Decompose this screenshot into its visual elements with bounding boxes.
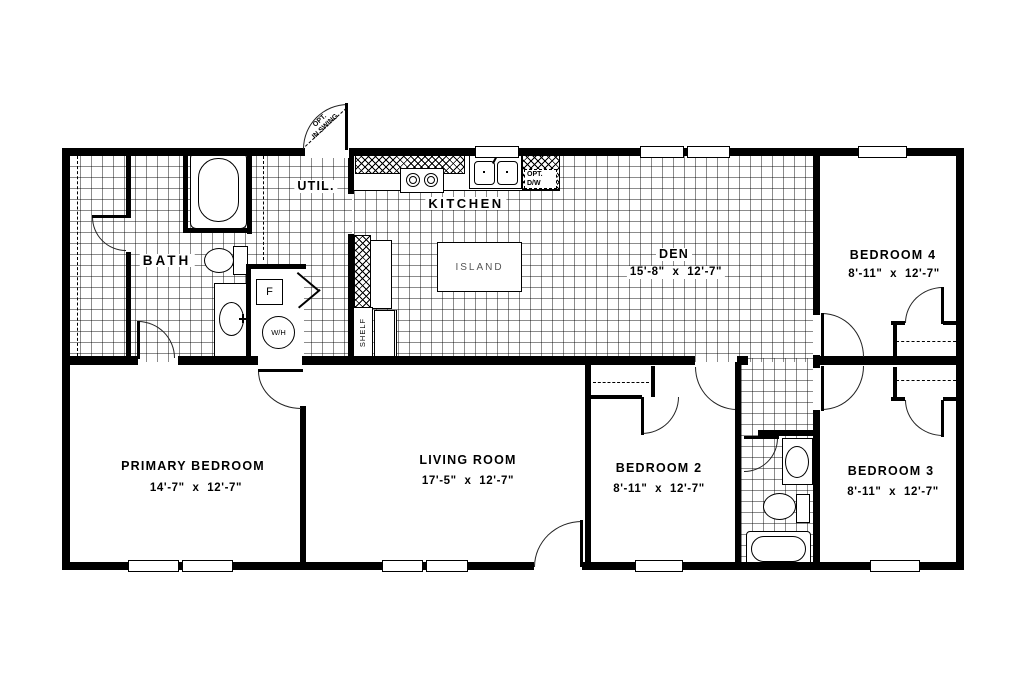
water-heater: W/H: [262, 316, 295, 349]
toilet2-tank: [796, 494, 810, 523]
room-dims-bedroom3: 8'-11" x 12'-7": [847, 486, 939, 498]
room-label-bath: BATH: [140, 254, 195, 267]
furnace-box: F: [256, 279, 283, 305]
window-bedroom2: [635, 560, 683, 572]
room-dims-living: 17'-5" x 12'-7": [422, 475, 514, 487]
room-label-util: UTIL.: [294, 180, 337, 193]
wall-segment: [247, 148, 252, 234]
bedroom3-closet-shelf-dashed: [896, 380, 956, 381]
pantry-hatch: [354, 235, 371, 308]
room-dims-den: 15'-8" x 12'-7": [627, 266, 725, 279]
basin-drain-dot: [506, 171, 508, 173]
shelf-label: SHELF: [359, 317, 368, 346]
wall-middle: [302, 356, 695, 365]
door-leaf: [137, 321, 140, 359]
room-dims-bedroom2: 8'-11" x 12'-7": [613, 483, 705, 495]
bathtub-basin: [198, 158, 239, 222]
wall-middle: [737, 356, 748, 365]
pantry-cabinet-lower: [374, 310, 397, 357]
room-label-living: LIVING ROOM: [419, 453, 516, 467]
sink-basin-left: [474, 161, 495, 185]
stove-burner-icon: [424, 173, 438, 187]
wall-middle: [178, 356, 258, 365]
door-leaf: [641, 397, 644, 435]
util-dashed-line: [263, 156, 264, 260]
door-swing-arc-bedroom4-closet: [905, 287, 943, 323]
door-leaf: [735, 367, 738, 410]
wall-segment: [943, 321, 960, 325]
wall-segment: [813, 410, 820, 570]
window-den-1: [640, 146, 684, 158]
floor-plan: OPT. D/W ISLAND SHELF F W/H: [0, 0, 1024, 683]
window-den-2: [687, 146, 730, 158]
wall-hall-bedrooms: [813, 148, 820, 315]
wall-segment: [893, 367, 897, 401]
window-primary-2: [182, 560, 233, 572]
door-swing-arc-bedroom3-closet: [905, 400, 943, 436]
stove-burner-icon: [406, 173, 420, 187]
window-kitchen: [475, 146, 519, 158]
room-label-kitchen: KITCHEN: [425, 197, 506, 210]
wall-middle: [62, 356, 138, 365]
wall-segment: [183, 228, 252, 233]
opt-dw-label-line1: OPT.: [527, 171, 543, 178]
wall-middle: [813, 356, 964, 365]
wall-segment: [943, 397, 960, 401]
room-label-bedroom2: BEDROOM 2: [616, 461, 703, 475]
door-swing-arc-bedroom4: [822, 313, 864, 357]
wall-segment: [126, 148, 131, 218]
window-living-2: [426, 560, 468, 572]
sink-basin-right: [497, 161, 518, 185]
door-swing-arc-bedroom2-closet: [642, 397, 679, 434]
bedroom4-closet-shelf-dashed: [896, 341, 956, 342]
bath2-sink: [785, 446, 809, 478]
wall-segment: [246, 264, 251, 364]
door-leaf: [92, 215, 127, 218]
wall-segment: [893, 321, 897, 357]
room-dims-primary: 14'-7" x 12'-7": [150, 482, 242, 494]
wall-segment: [891, 397, 905, 401]
opt-dw-label-line2: D/W: [527, 180, 541, 187]
wall-segment: [651, 366, 655, 397]
door-leaf: [941, 287, 944, 324]
wall-segment: [891, 321, 905, 325]
room-label-den: DEN: [656, 248, 692, 261]
door-leaf: [821, 313, 824, 358]
water-heater-label: W/H: [271, 328, 286, 337]
basin-drain-dot: [483, 171, 485, 173]
door-leaf: [258, 369, 303, 372]
window-bedroom4: [858, 146, 907, 158]
door-swing-arc-primary: [258, 371, 301, 409]
bathtub2-basin: [751, 536, 806, 562]
optional-dishwasher-box: OPT. D/W: [524, 169, 557, 189]
door-leaf: [941, 400, 944, 437]
closet-rod-dashed: [77, 156, 78, 356]
wall-segment: [246, 264, 306, 269]
kitchen-island: ISLAND: [437, 242, 522, 292]
wall-living-bedroom2: [585, 362, 591, 570]
stove: [400, 168, 444, 193]
faucet-icon: [242, 314, 244, 323]
shelf-box: SHELF: [353, 307, 373, 357]
room-label-bedroom4: BEDROOM 4: [850, 248, 937, 262]
window-primary-1: [128, 560, 179, 572]
wall-segment: [183, 148, 188, 232]
bedroom2-closet-shelf-dashed: [593, 382, 649, 383]
door-swing-arc-bedroom2: [695, 367, 737, 410]
room-label-bedroom3: BEDROOM 3: [848, 464, 935, 478]
toilet2-bowl: [763, 493, 796, 520]
door-swing-arc-living: [534, 521, 582, 567]
wall-segment: [348, 234, 354, 364]
wall-segment: [126, 252, 131, 364]
door-swing-arc-bedroom3: [822, 366, 864, 410]
bathtub: [190, 152, 247, 229]
room-dims-bedroom4: 8'-11" x 12'-7": [848, 268, 940, 280]
furnace-label: F: [266, 286, 273, 298]
island-label: ISLAND: [455, 262, 503, 273]
toilet-bowl: [204, 248, 234, 273]
room-label-primary: PRIMARY BEDROOM: [121, 459, 265, 473]
window-living-1: [382, 560, 423, 572]
window-bedroom3: [870, 560, 920, 572]
pantry-cabinet-upper: [370, 240, 392, 309]
wall-segment: [589, 395, 642, 399]
door-leaf: [821, 366, 824, 411]
door-leaf: [744, 436, 779, 439]
kitchen-double-sink: [469, 154, 522, 189]
door-leaf: [580, 520, 583, 567]
wall-primary-living: [300, 406, 306, 570]
